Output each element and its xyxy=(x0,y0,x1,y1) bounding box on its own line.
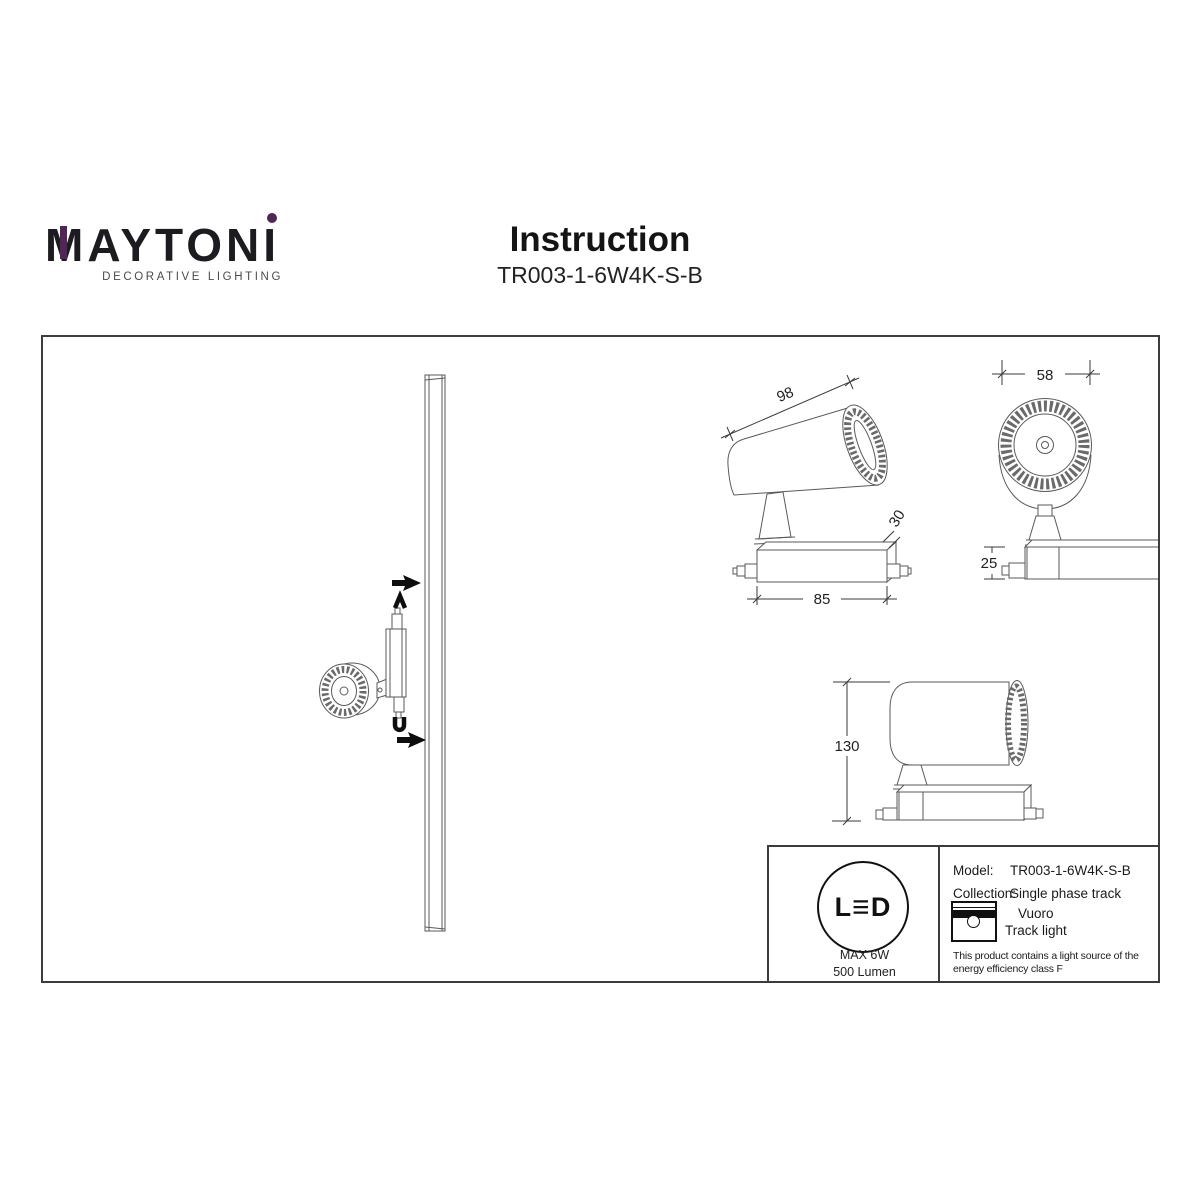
energy-note-line2: energy efficiency class F xyxy=(953,963,1063,975)
page-header: Instruction TR003-1-6W4K-S-B xyxy=(0,220,1200,289)
dimension-58: 58 xyxy=(992,360,1100,385)
side-view: 130 xyxy=(830,678,1043,825)
model-label: Model: xyxy=(953,863,994,878)
led-letter-l: L xyxy=(835,892,853,923)
model-value: TR003-1-6W4K-S-B xyxy=(1010,863,1131,878)
dim-label-58: 58 xyxy=(1037,367,1054,384)
dim-label-25: 25 xyxy=(981,555,998,572)
installation-diagram xyxy=(320,375,446,931)
dim-label-98: 98 xyxy=(774,384,796,406)
dimension-98: 98 xyxy=(721,375,859,441)
chevron-down-icon xyxy=(395,717,404,730)
insert-arrow-bottom-icon xyxy=(397,732,426,748)
spec-table: L ≡ D MAX 6W 500 Lumen Model: TR003-1-6W… xyxy=(767,845,1158,981)
luminous-flux: 500 Lumen xyxy=(779,965,950,979)
led-cell: L ≡ D MAX 6W 500 Lumen xyxy=(769,847,940,981)
dimension-130: 130 xyxy=(830,678,890,825)
dim-label-30: 30 xyxy=(886,507,909,530)
product-type: Track light xyxy=(1005,923,1067,938)
dimension-25: 25 xyxy=(981,547,1005,579)
led-badge: L ≡ D xyxy=(817,861,909,953)
collection-label: Collection: xyxy=(953,886,1016,901)
front-view: 58 25 xyxy=(981,360,1158,579)
max-power: MAX 6W xyxy=(779,948,950,962)
chevron-up-icon xyxy=(395,596,405,608)
dim-label-85: 85 xyxy=(814,591,831,608)
model-number: TR003-1-6W4K-S-B xyxy=(0,262,1200,289)
track-icon-line xyxy=(953,907,995,908)
fixture-installation-view xyxy=(320,608,407,718)
led-letter-e: ≡ xyxy=(852,889,870,926)
diagram-panel: 98 30 85 xyxy=(41,335,1160,983)
dim-label-130: 130 xyxy=(834,738,859,755)
side-perspective-view: 98 30 85 xyxy=(721,375,911,608)
dimension-85: 85 xyxy=(747,586,897,608)
track-icon-lamp xyxy=(967,915,980,928)
track-light-icon xyxy=(951,901,997,942)
insert-arrow-top-icon xyxy=(392,575,421,591)
collection-value: Single phase track xyxy=(1010,886,1121,901)
track-rail xyxy=(425,375,445,931)
energy-note-line1: This product contains a light source of … xyxy=(953,950,1139,962)
series-name: Vuoro xyxy=(1018,906,1054,921)
led-letter-d: D xyxy=(871,892,892,923)
page-title: Instruction xyxy=(0,220,1200,260)
